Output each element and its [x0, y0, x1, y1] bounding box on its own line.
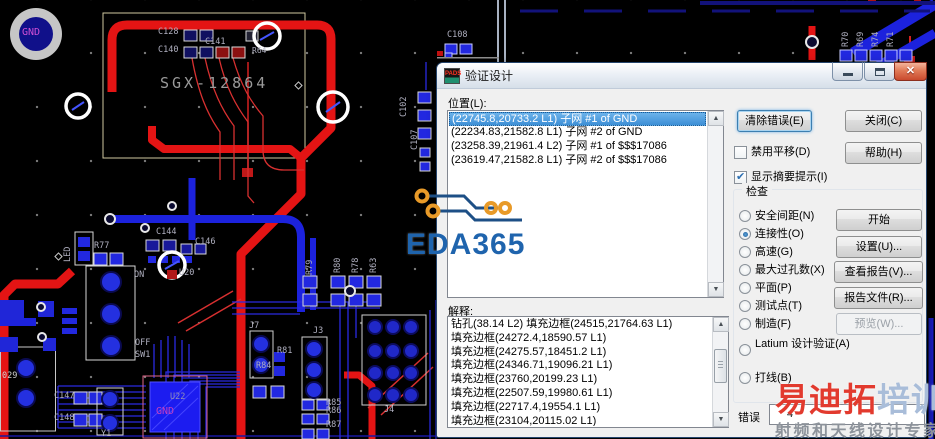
checkbox-icon — [734, 146, 747, 159]
maximize-icon — [875, 68, 885, 76]
pcb-label: R81 — [277, 347, 292, 356]
radio-icon — [739, 282, 751, 294]
pcb-label: OFF — [135, 339, 150, 348]
pcb-label: C148 — [54, 414, 74, 423]
scroll-down-icon[interactable]: ▼ — [713, 412, 729, 427]
radio-max-via-count[interactable]: 最大过孔数(X) — [739, 264, 825, 277]
location-listbox[interactable]: (22745.8,20733.2 L1) 子网 #1 of GND (22234… — [447, 110, 724, 298]
radio-icon — [739, 344, 751, 356]
radio-icon — [739, 318, 751, 330]
help-button[interactable]: 帮助(H) — [845, 142, 922, 164]
scroll-thumb[interactable] — [714, 349, 727, 383]
pcb-label: C140 — [158, 46, 178, 55]
radio-fabrication[interactable]: 制造(F) — [739, 318, 791, 331]
location-item[interactable]: (22745.8,20733.2 L1) 子网 #1 of GND — [449, 112, 706, 126]
radio-wire-bond[interactable]: 打线(B) — [739, 372, 792, 385]
pcb-label: R79 — [306, 260, 315, 275]
check-group-label: 检查 — [742, 183, 772, 199]
explain-item[interactable]: 填充边框(22717.4,19554.1 L1) — [449, 401, 711, 415]
explain-item[interactable]: 钻孔(38.14 L2) 填充边框(24515,21764.63 L1) — [449, 318, 711, 332]
radio-icon — [739, 264, 751, 276]
pcb-label: U20 — [179, 269, 194, 278]
pcb-label: C141 — [205, 38, 225, 47]
pcb-label: C107 — [411, 130, 420, 150]
pcb-label: R74 — [872, 32, 881, 47]
pcb-label: GND — [156, 407, 174, 417]
location-item[interactable]: (23619.47,21582.8 L1) 子网 #2 of $$$17086 — [449, 154, 706, 168]
screen: GNDC128C140C141SGX-12864R64C108R70R69R74… — [0, 0, 935, 439]
setup-button[interactable]: 设置(U)... — [836, 236, 922, 258]
pcb-label: R63 — [370, 258, 379, 273]
pcb-label: Y1 — [101, 430, 111, 439]
close-button[interactable]: 关闭(C) — [845, 110, 922, 132]
pads-app-icon: PADS — [444, 68, 460, 84]
dialog-title: 验证设计 — [465, 67, 513, 84]
minimize-icon — [843, 73, 853, 76]
disable-pan-checkbox[interactable]: 禁用平移(D) — [734, 146, 810, 159]
radio-selected-icon — [739, 228, 751, 240]
pcb-label: C128 — [158, 28, 178, 37]
pcb-label: R84 — [256, 362, 271, 371]
view-report-button[interactable]: 查看报告(V)... — [834, 261, 923, 283]
maximize-button[interactable] — [864, 62, 895, 81]
explain-item[interactable]: 填充边框(24275.57,18451.2 L1) — [449, 346, 711, 360]
pcb-label: U22 — [170, 393, 185, 402]
dialog-titlebar[interactable]: PADS 验证设计 ✕ — [437, 63, 926, 89]
pcb-label: C102 — [400, 97, 409, 117]
pcb-label: LED — [64, 247, 73, 262]
explain-item[interactable]: 填充边框(22507.59,19980.61 L1) — [449, 387, 711, 401]
scroll-down-icon[interactable]: ▼ — [708, 282, 724, 297]
location-item[interactable]: (23258.39,21961.4 L2) 子网 #1 of $$$17086 — [449, 140, 706, 154]
error-count-field: 4 — [769, 404, 925, 425]
radio-high-speed[interactable]: 高速(G) — [739, 246, 793, 259]
pcb-label: R87 — [326, 421, 341, 430]
radio-icon — [739, 210, 751, 222]
pcb-label: R86 — [326, 407, 341, 416]
pcb-label: ON — [134, 271, 144, 280]
dialog-body: 位置(L): (22745.8,20733.2 L1) 子网 #1 of GND… — [437, 89, 926, 437]
explain-item[interactable]: 填充边框(23104,20115.02 L1) — [449, 415, 711, 426]
start-button[interactable]: 开始 — [836, 209, 922, 231]
pcb-label: J7 — [249, 322, 259, 331]
radio-connectivity[interactable]: 连接性(O) — [739, 228, 804, 241]
radio-icon — [739, 372, 751, 384]
pcb-label: SGX-12864 — [160, 76, 268, 91]
pcb-label: R78 — [352, 258, 361, 273]
pcb-label: R80 — [334, 258, 343, 273]
pcb-label: R71 — [887, 32, 896, 47]
pcb-label: C146 — [195, 238, 215, 247]
report-file-button[interactable]: 报告文件(R)... — [834, 287, 923, 309]
explain-listbox[interactable]: 钻孔(38.14 L2) 填充边框(24515,21764.63 L1) 填充边… — [447, 316, 729, 428]
explain-item[interactable]: 填充边框(24346.71,19096.21 L1) — [449, 359, 711, 373]
scroll-up-icon[interactable]: ▲ — [708, 111, 724, 126]
pcb-label: C108 — [447, 31, 467, 40]
pcb-label: 029 — [2, 372, 17, 381]
pcb-label: GND — [22, 28, 40, 38]
radio-icon — [739, 246, 751, 258]
radio-clearance[interactable]: 安全间距(N) — [739, 210, 814, 223]
location-item[interactable]: (22234.83,21582.8 L1) 子网 #2 of GND — [449, 126, 706, 140]
pcb-label: J4 — [384, 406, 394, 415]
pcb-label: R77 — [94, 242, 109, 251]
pcb-label: R64 — [252, 47, 266, 55]
pcb-label: C147 — [54, 392, 74, 401]
pcb-label: R70 — [842, 32, 851, 47]
explain-scrollbar[interactable]: ▲ ▼ — [712, 317, 728, 427]
pcb-label: J3 — [313, 327, 323, 336]
close-icon[interactable]: ✕ — [894, 62, 927, 81]
location-scrollbar[interactable]: ▲ ▼ — [707, 111, 723, 297]
radio-icon — [739, 300, 751, 312]
scroll-up-icon[interactable]: ▲ — [713, 317, 729, 332]
error-label: 错误 — [738, 409, 760, 425]
radio-test-point[interactable]: 测试点(T) — [739, 300, 802, 313]
pcb-label: C144 — [156, 228, 176, 237]
radio-plane[interactable]: 平面(P) — [739, 282, 792, 295]
preview-button[interactable]: 预览(W)... — [836, 313, 922, 335]
pcb-label: R69 — [857, 32, 866, 47]
explain-item[interactable]: 填充边框(23760,20199.23 L1) — [449, 373, 711, 387]
radio-latium-verification[interactable]: Latium 设计验证(A) — [739, 338, 855, 356]
verify-design-dialog: PADS 验证设计 ✕ 位置(L): (22745.8,20733.2 L1) … — [436, 62, 927, 438]
explain-item[interactable]: 填充边框(24272.4,18590.57 L1) — [449, 332, 711, 346]
clear-errors-button[interactable]: 清除错误(E) — [737, 110, 812, 132]
pcb-label: SW1 — [135, 351, 150, 360]
minimize-button[interactable] — [832, 62, 863, 81]
location-label: 位置(L): — [448, 95, 487, 111]
